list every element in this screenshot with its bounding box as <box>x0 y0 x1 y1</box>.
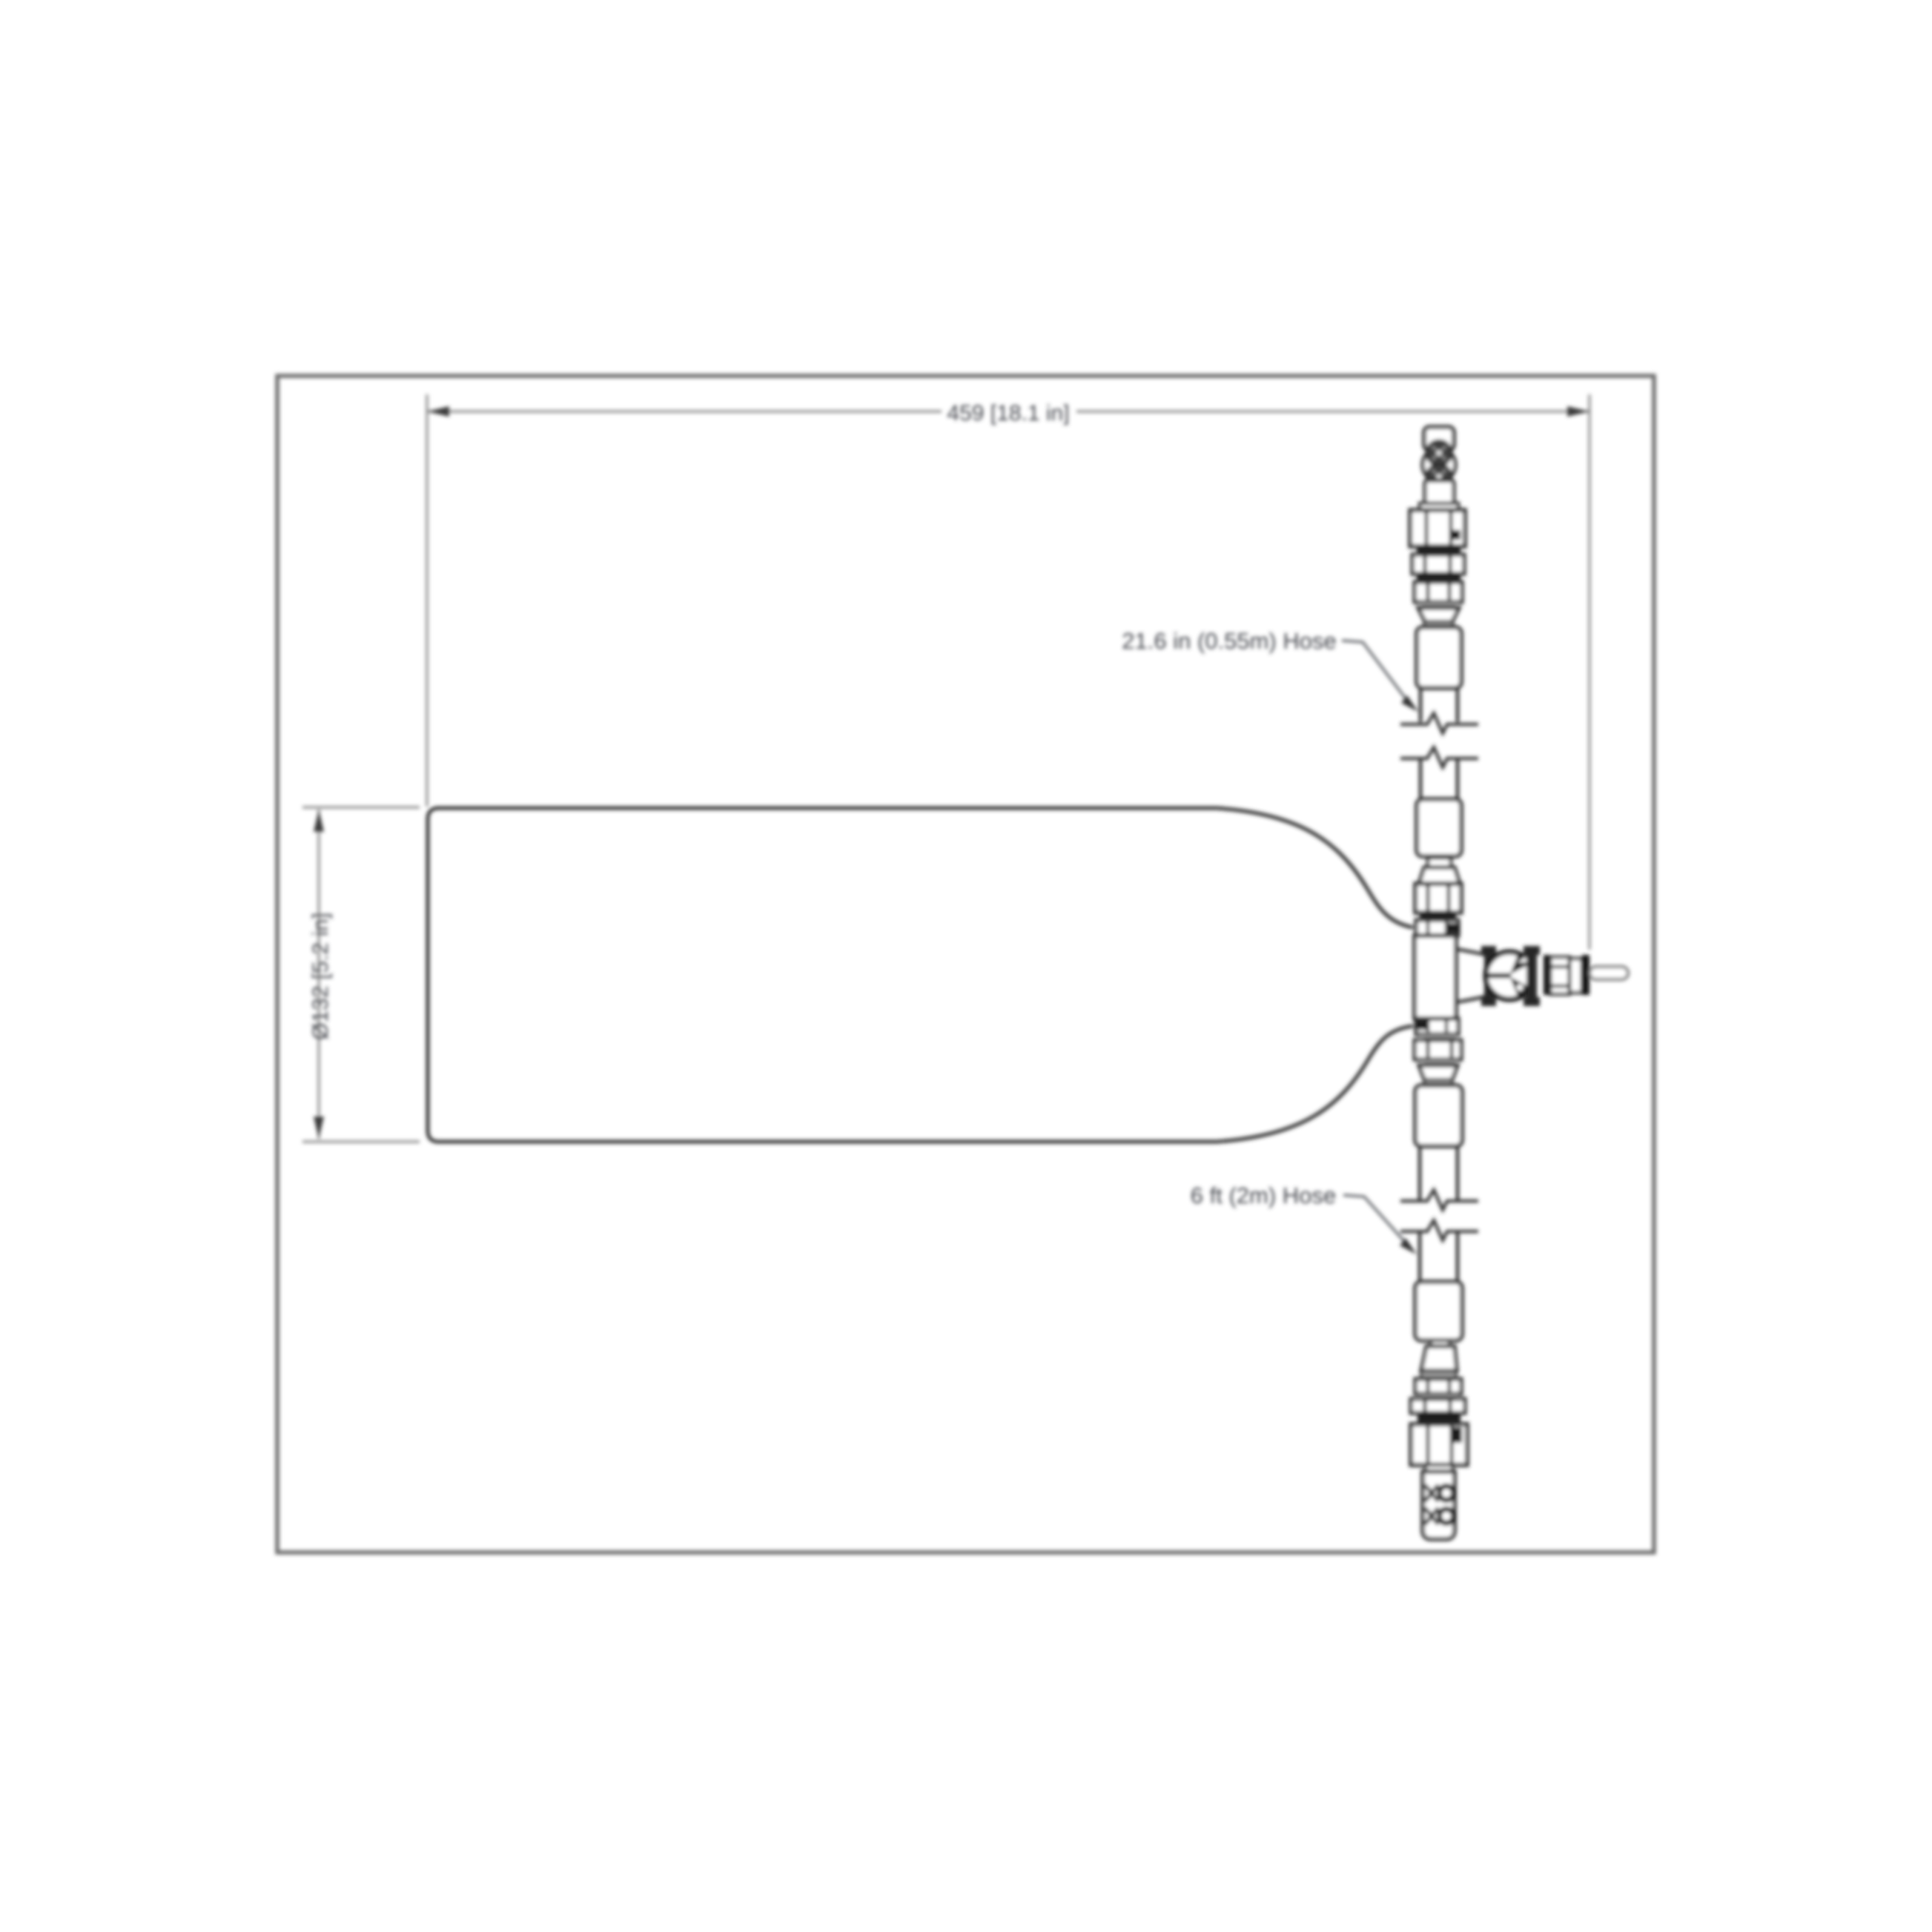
svg-text:6 ft (2m) Hose: 6 ft (2m) Hose <box>1191 1182 1336 1208</box>
svg-text:Ø132 [5.2 in]: Ø132 [5.2 in] <box>308 913 333 1040</box>
svg-text:21.6 in (0.55m) Hose: 21.6 in (0.55m) Hose <box>1122 628 1336 654</box>
svg-text:459 [18.1 in]: 459 [18.1 in] <box>947 401 1069 426</box>
